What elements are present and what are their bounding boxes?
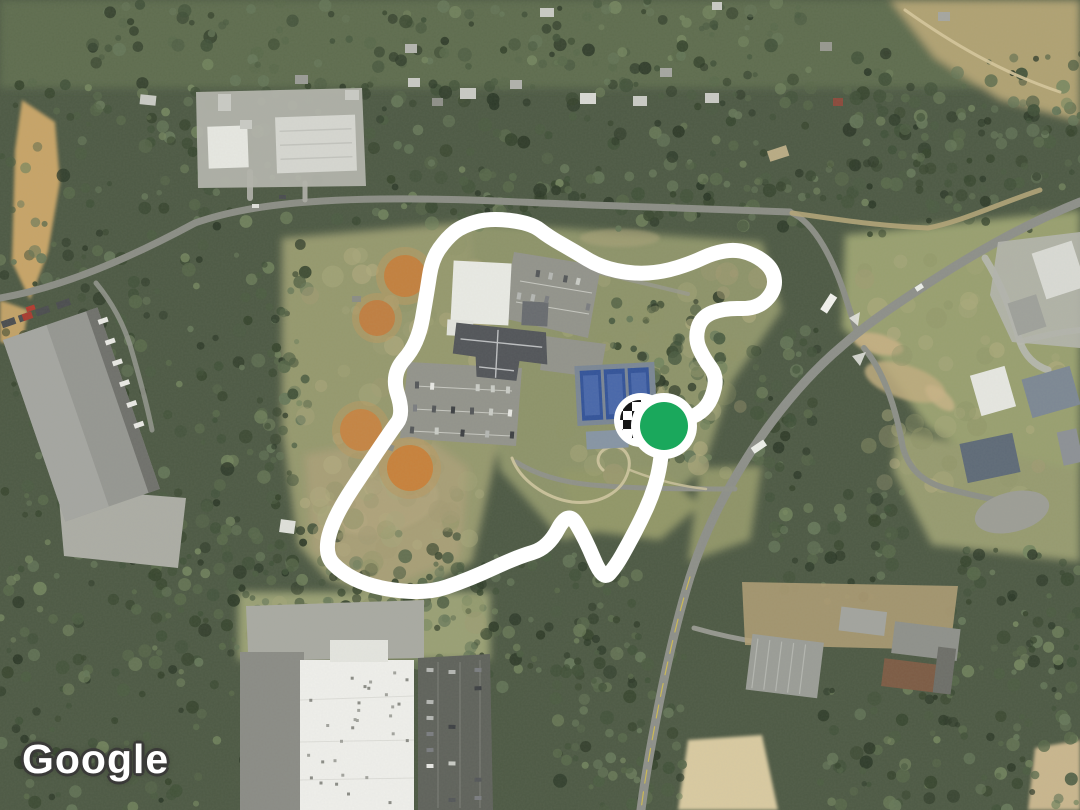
satellite-imagery: [0, 0, 1080, 810]
google-attribution[interactable]: Google: [22, 736, 169, 783]
current-position-dot: [640, 402, 688, 450]
satellite-map-canvas[interactable]: Google: [0, 0, 1080, 810]
image-grain: [0, 0, 1080, 810]
route-end-marker: [631, 393, 697, 459]
